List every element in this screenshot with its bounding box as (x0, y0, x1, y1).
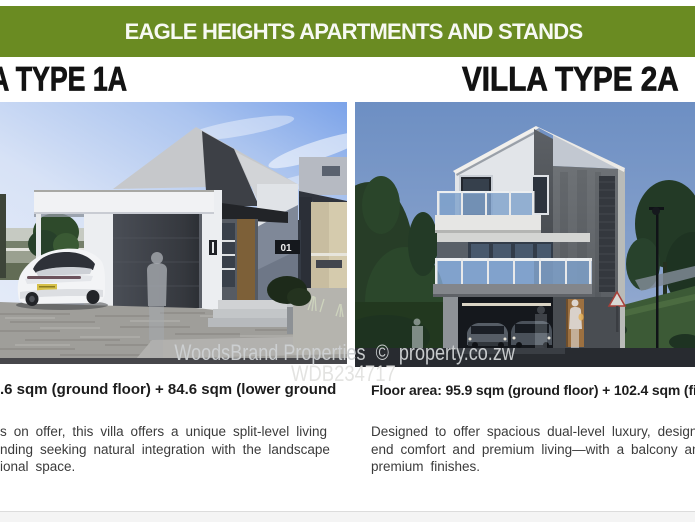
svg-text:01: 01 (280, 243, 292, 254)
